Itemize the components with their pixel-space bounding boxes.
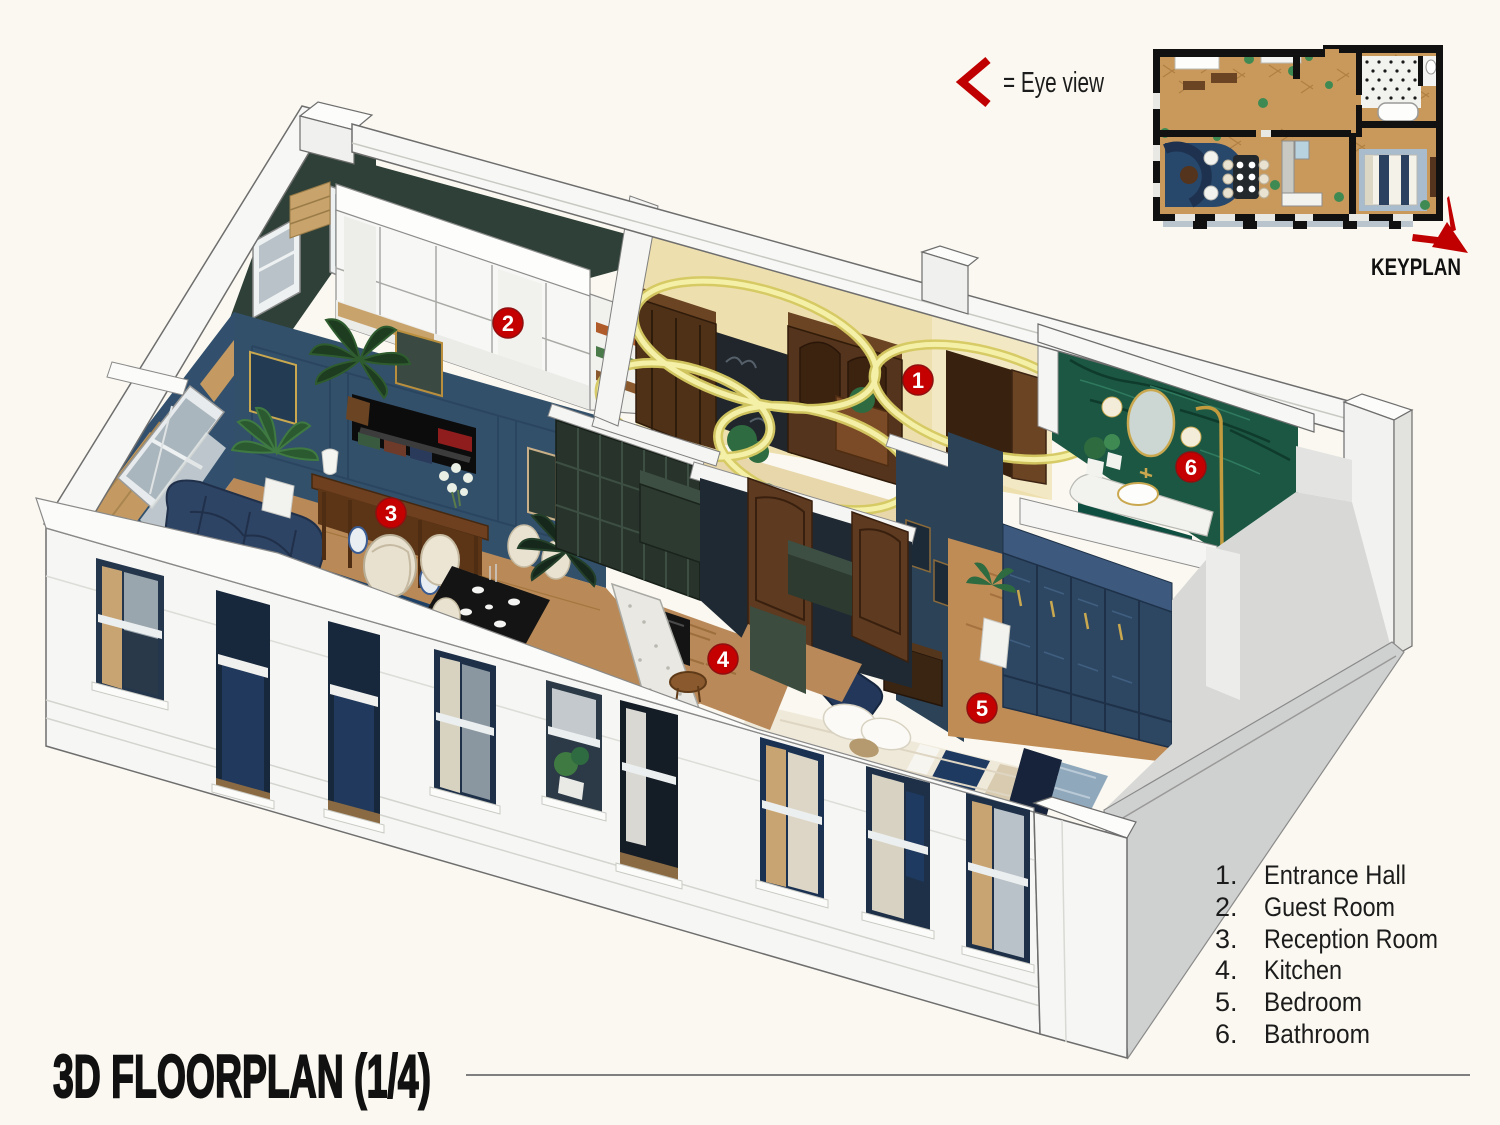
svg-text:2: 2: [502, 311, 514, 336]
svg-text:= Eye view: = Eye view: [1003, 67, 1105, 99]
svg-text:1.: 1.: [1215, 860, 1238, 890]
svg-text:6.: 6.: [1215, 1019, 1238, 1049]
svg-text:5.: 5.: [1215, 987, 1238, 1017]
svg-text:Reception Room: Reception Room: [1264, 924, 1438, 954]
svg-text:3: 3: [385, 501, 397, 526]
svg-text:Kitchen: Kitchen: [1264, 955, 1342, 985]
svg-text:1: 1: [912, 368, 924, 393]
svg-text:3D FLOORPLAN (1/4): 3D FLOORPLAN (1/4): [53, 1043, 431, 1110]
svg-text:Bedroom: Bedroom: [1264, 987, 1362, 1017]
svg-text:4: 4: [717, 647, 730, 672]
svg-text:4.: 4.: [1215, 955, 1238, 985]
svg-text:5: 5: [976, 696, 988, 721]
svg-text:3.: 3.: [1215, 924, 1238, 954]
svg-text:6: 6: [1185, 455, 1197, 480]
svg-text:2.: 2.: [1215, 892, 1238, 922]
svg-text:Entrance Hall: Entrance Hall: [1264, 860, 1406, 890]
svg-text:Bathroom: Bathroom: [1264, 1019, 1370, 1049]
svg-text:Guest Room: Guest Room: [1264, 892, 1395, 922]
svg-text:KEYPLAN: KEYPLAN: [1371, 254, 1461, 281]
